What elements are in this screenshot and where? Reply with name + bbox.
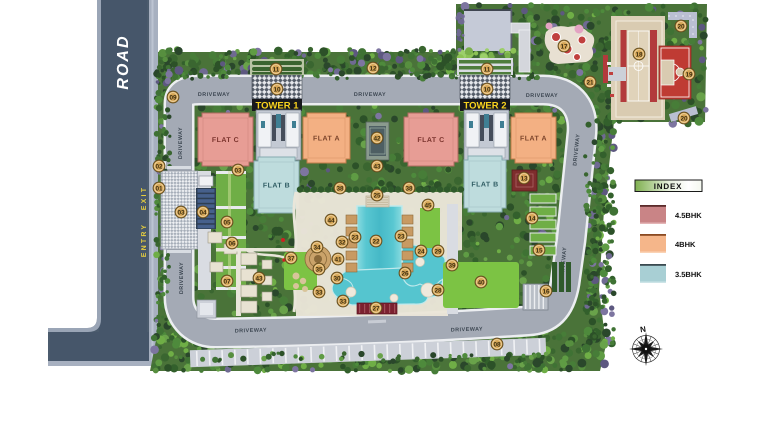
svg-text:33: 33 — [315, 289, 323, 296]
svg-text:EXIT: EXIT — [141, 186, 148, 210]
svg-text:16: 16 — [542, 288, 550, 295]
svg-text:34: 34 — [313, 244, 321, 251]
svg-text:4.5BHK: 4.5BHK — [675, 211, 702, 220]
svg-text:02: 02 — [155, 163, 163, 170]
svg-text:FLAT C: FLAT C — [212, 137, 239, 144]
svg-text:DRIVEWAY: DRIVEWAY — [235, 327, 267, 334]
svg-text:26: 26 — [401, 270, 409, 277]
svg-text:13: 13 — [520, 175, 528, 182]
svg-text:33: 33 — [339, 298, 347, 305]
svg-text:10: 10 — [273, 86, 281, 93]
svg-text:03: 03 — [177, 209, 185, 216]
svg-text:FLAT B: FLAT B — [471, 182, 498, 189]
svg-text:07: 07 — [223, 278, 231, 285]
svg-text:09: 09 — [169, 94, 177, 101]
svg-text:14: 14 — [528, 215, 536, 222]
svg-text:41: 41 — [334, 256, 342, 263]
svg-text:20: 20 — [677, 23, 685, 30]
svg-text:23: 23 — [397, 233, 405, 240]
svg-text:FLAT C: FLAT C — [417, 137, 444, 144]
svg-text:40: 40 — [477, 279, 485, 286]
svg-text:21: 21 — [586, 79, 594, 86]
svg-text:23: 23 — [351, 234, 359, 241]
svg-text:DRIVEWAY: DRIVEWAY — [178, 127, 184, 159]
svg-text:25: 25 — [373, 192, 381, 199]
svg-text:4BHK: 4BHK — [675, 240, 696, 249]
svg-text:37: 37 — [287, 255, 295, 262]
svg-text:12: 12 — [369, 65, 377, 72]
svg-text:DRIVEWAY: DRIVEWAY — [451, 326, 483, 333]
svg-text:05: 05 — [223, 219, 231, 226]
svg-text:FLAT A: FLAT A — [520, 136, 547, 143]
svg-text:32: 32 — [338, 239, 346, 246]
svg-text:44: 44 — [327, 217, 335, 224]
svg-text:43: 43 — [373, 163, 381, 170]
svg-text:FLAT A: FLAT A — [313, 136, 340, 143]
svg-text:35: 35 — [315, 266, 323, 273]
svg-text:DRIVEWAY: DRIVEWAY — [179, 262, 185, 294]
svg-text:03: 03 — [234, 167, 242, 174]
svg-text:22: 22 — [372, 238, 380, 245]
svg-text:15: 15 — [535, 247, 543, 254]
svg-text:20: 20 — [680, 115, 688, 122]
svg-text:ROAD: ROAD — [115, 34, 132, 89]
svg-text:04: 04 — [199, 209, 207, 216]
svg-text:DRIVEWAY: DRIVEWAY — [526, 93, 558, 99]
svg-text:42: 42 — [373, 135, 381, 142]
svg-text:17: 17 — [560, 43, 568, 50]
svg-text:18: 18 — [635, 51, 643, 58]
svg-text:43: 43 — [255, 275, 263, 282]
svg-text:11: 11 — [273, 66, 280, 73]
svg-text:38: 38 — [405, 185, 413, 192]
svg-text:38: 38 — [336, 185, 344, 192]
svg-text:27: 27 — [372, 305, 380, 312]
svg-text:19: 19 — [685, 71, 693, 78]
svg-text:30: 30 — [333, 275, 341, 282]
svg-text:10: 10 — [483, 86, 491, 93]
svg-text:DRIVEWAY: DRIVEWAY — [354, 92, 386, 98]
svg-text:39: 39 — [448, 262, 456, 269]
svg-text:01: 01 — [155, 185, 163, 192]
svg-text:06: 06 — [228, 240, 236, 247]
svg-text:45: 45 — [424, 202, 432, 209]
svg-text:29: 29 — [434, 248, 442, 255]
svg-text:DRIVEWAY: DRIVEWAY — [198, 92, 230, 98]
svg-text:3.5BHK: 3.5BHK — [675, 270, 702, 279]
svg-text:FLAT B: FLAT B — [263, 183, 290, 190]
svg-text:08: 08 — [493, 341, 501, 348]
svg-text:28: 28 — [434, 287, 442, 294]
svg-text:24: 24 — [417, 248, 425, 255]
svg-text:INDEX: INDEX — [654, 182, 682, 191]
svg-text:11: 11 — [484, 66, 491, 73]
svg-text:ENTRY: ENTRY — [141, 223, 148, 257]
